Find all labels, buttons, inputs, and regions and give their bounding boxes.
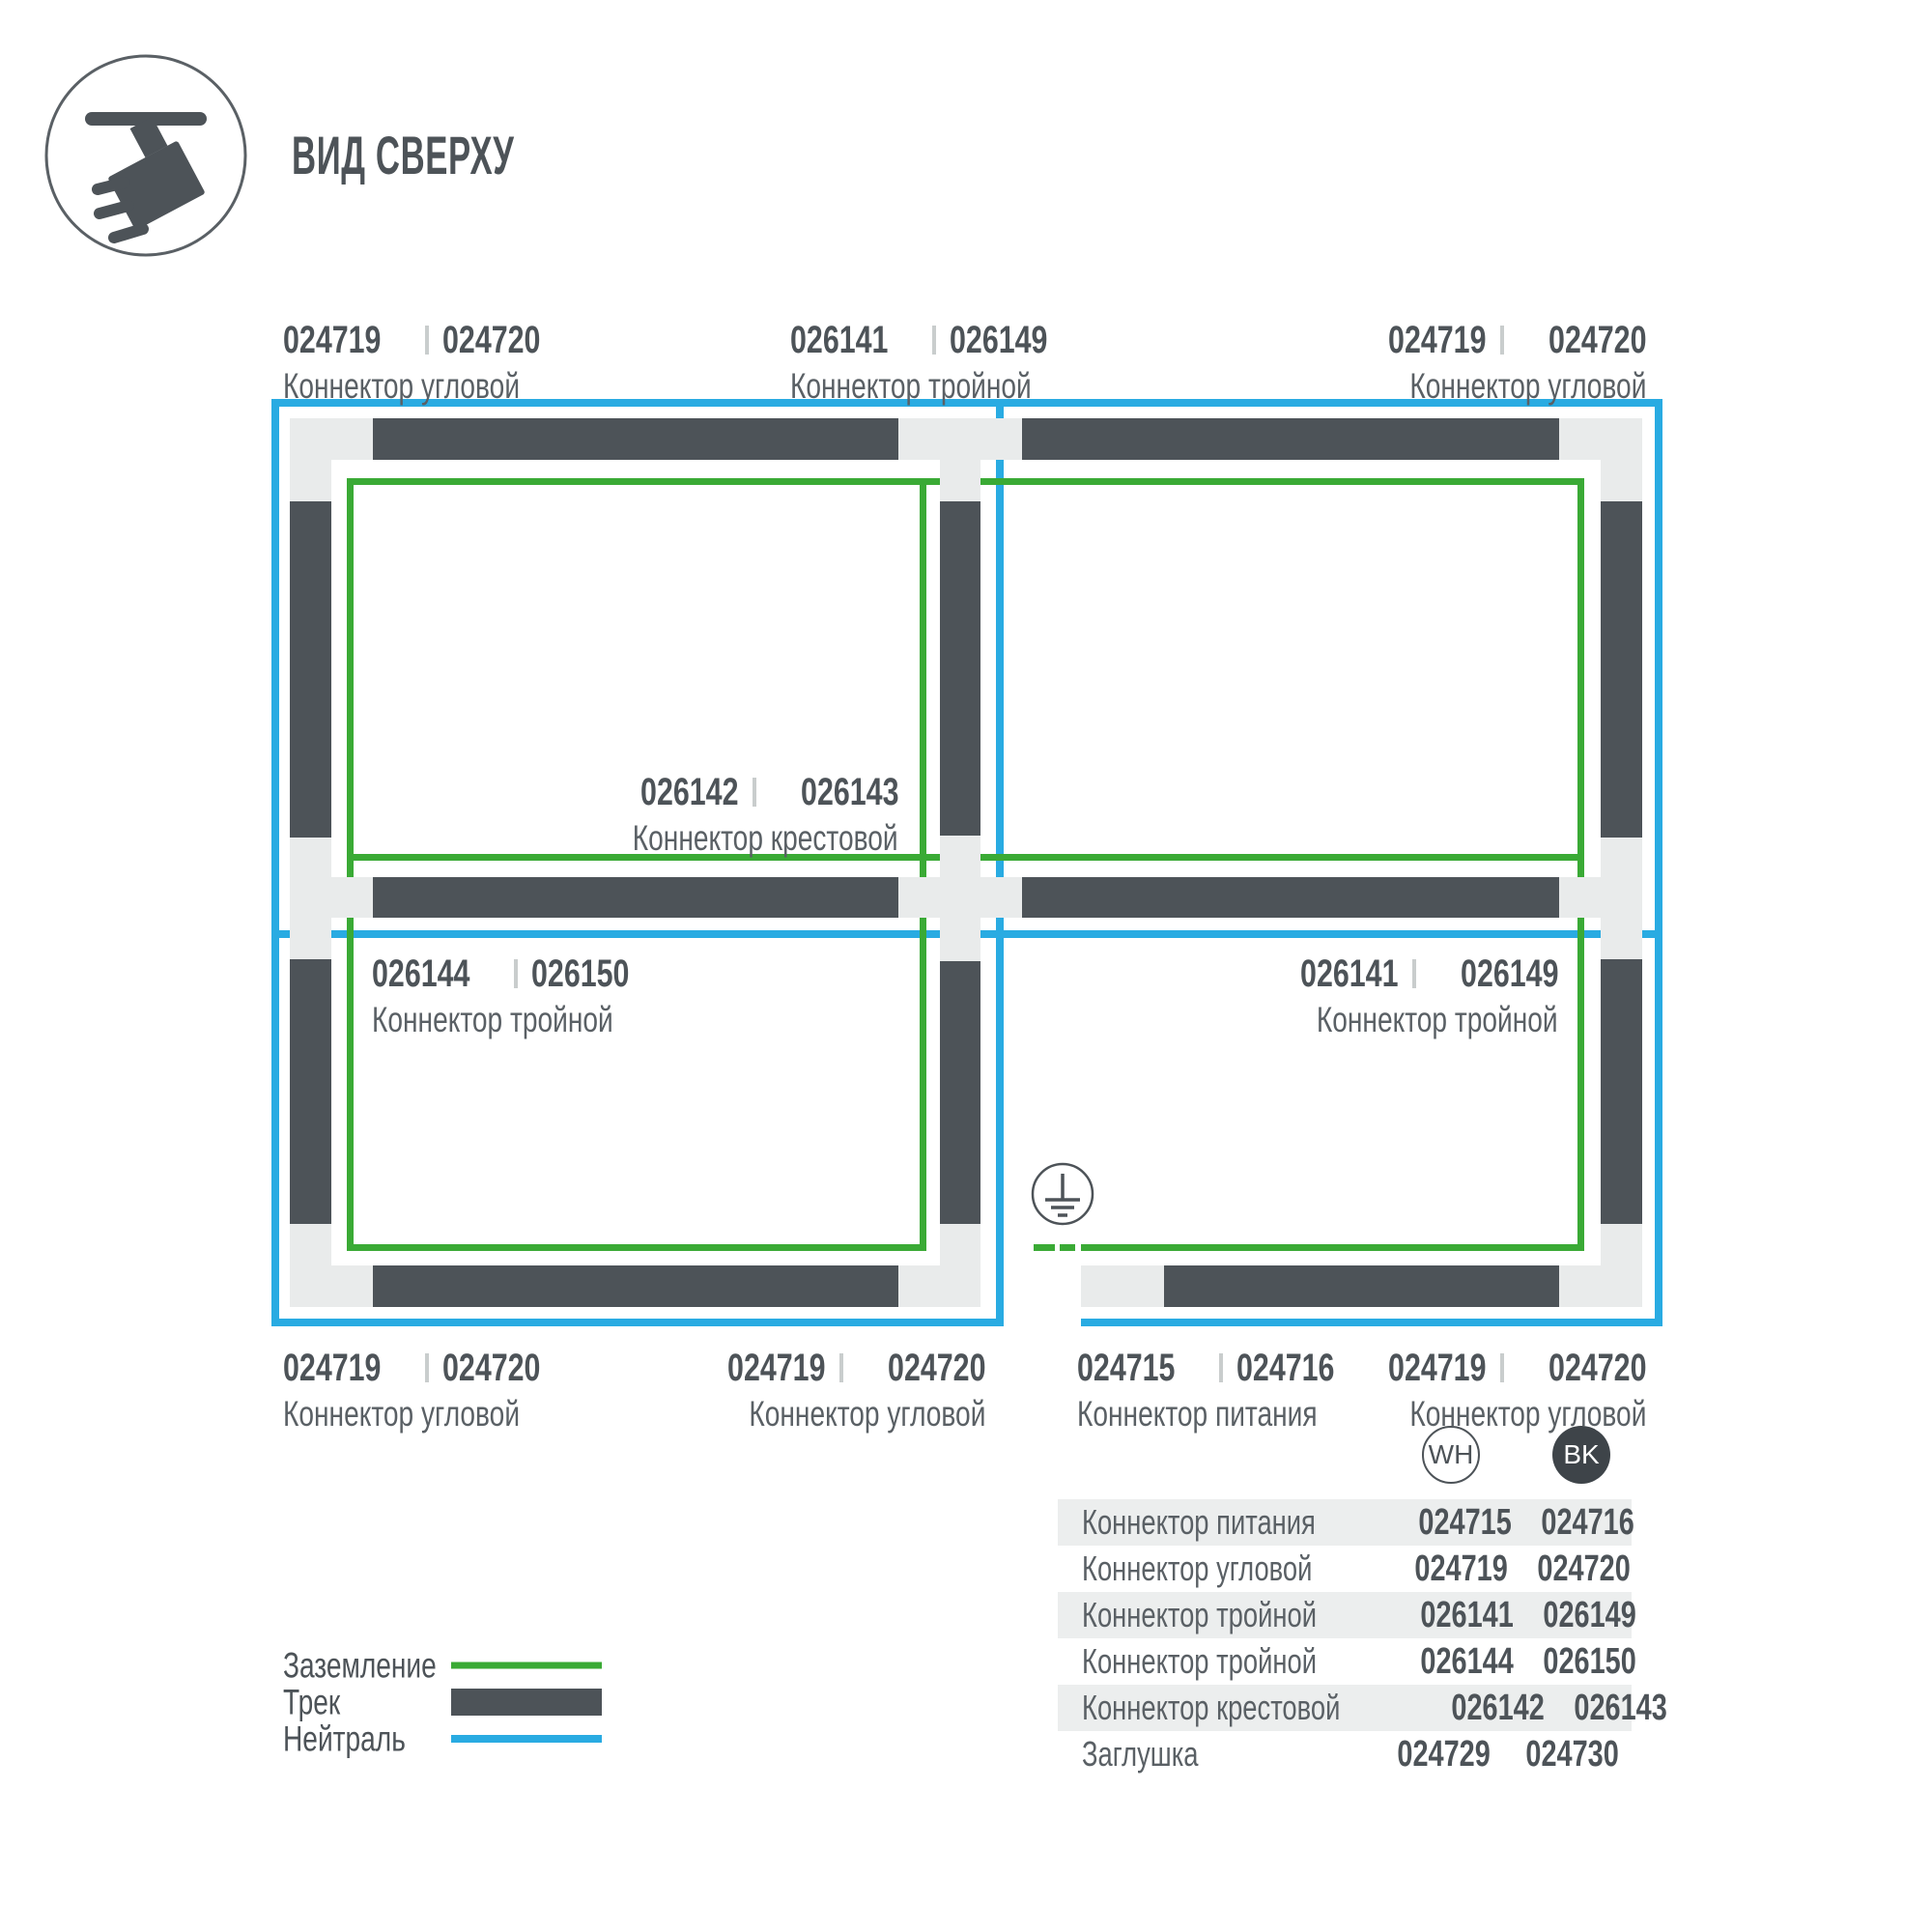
ground-line-bottom-left: [347, 1244, 926, 1251]
neutral-line-swatch: [451, 1735, 602, 1743]
part-label-bottom-middle: 024719024720 Коннектор угловой: [674, 1349, 985, 1432]
ground-dash-2: [1060, 1244, 1075, 1251]
table-row: Заглушка 024729 024730: [1058, 1731, 1632, 1777]
ground-line-bottom-right: [1081, 1244, 1584, 1251]
page: ВИД СВЕРХУ: [0, 0, 1932, 1932]
ground-line-swatch: [451, 1662, 602, 1669]
connector-tee-right-stem: [1559, 877, 1642, 918]
part-label-center: 026142026143 Коннектор крестовой: [549, 773, 898, 856]
track-bar-bottom-right: [1081, 1265, 1642, 1307]
connector-cross-center-vertical: [940, 836, 980, 961]
table-row: Коннектор тройной 026141 026149: [1058, 1592, 1632, 1638]
color-badge-bk: BK: [1552, 1426, 1610, 1484]
part-label-bottom-left: 024719024720 Коннектор угловой: [283, 1349, 594, 1432]
neutral-line-bottom-left: [271, 1319, 1004, 1326]
part-label-top-middle: 026141026149 Коннектор тройной: [790, 321, 1108, 404]
part-label-bottom-right: 024719024720 Коннектор угловой: [1335, 1349, 1646, 1432]
connector-tee-left-stem: [290, 877, 373, 918]
page-title: ВИД СВЕРХУ: [292, 124, 651, 186]
connector-tee-top-stem: [940, 418, 980, 501]
connector-power-feed: [1081, 1265, 1164, 1307]
ground-line-right: [1577, 478, 1584, 1251]
track-bar-bottom-left: [290, 1265, 980, 1307]
table-row: Коннектор угловой 024719 024720: [1058, 1546, 1632, 1592]
ground-line-left: [347, 478, 354, 1251]
part-label-mid-right: 026141026149 Коннектор тройной: [1240, 954, 1558, 1037]
ground-dash-1: [1034, 1244, 1055, 1251]
table-row: Коннектор тройной 026144 026150: [1058, 1638, 1632, 1685]
legend-item-neutral: Нейтраль: [283, 1720, 604, 1757]
connector-corner-top-right-arm: [1601, 418, 1642, 501]
part-label-top-right: 024719024720 Коннектор угловой: [1335, 321, 1646, 404]
table-row: Коннектор питания 024715 024716: [1058, 1499, 1632, 1546]
neutral-line-left: [271, 399, 279, 1326]
neutral-line-bottom-right: [1081, 1319, 1662, 1326]
part-label-top-left: 024719024720 Коннектор угловой: [283, 321, 594, 404]
connector-corner-bottom-middle-arm: [898, 1265, 980, 1307]
part-label-mid-left: 026144026150 Коннектор тройной: [372, 954, 690, 1037]
track-bar-swatch: [451, 1689, 602, 1716]
track-spotlight-icon: [43, 53, 248, 258]
color-badge-wh: WH: [1422, 1426, 1480, 1484]
connector-corner-bottom-right-arm: [1559, 1265, 1642, 1307]
legend-item-ground: Заземление: [283, 1647, 604, 1684]
ground-symbol-icon: [1030, 1161, 1095, 1227]
ground-line-center-vertical: [920, 478, 926, 1251]
neutral-line-center-vertical: [996, 399, 1004, 1326]
table-row: Коннектор крестовой 026142 026143: [1058, 1685, 1632, 1731]
neutral-line-right: [1655, 399, 1662, 1326]
connector-corner-bottom-left-arm: [290, 1265, 373, 1307]
legend-item-track: Трек: [283, 1684, 604, 1720]
connector-corner-top-left-arm: [290, 418, 331, 501]
